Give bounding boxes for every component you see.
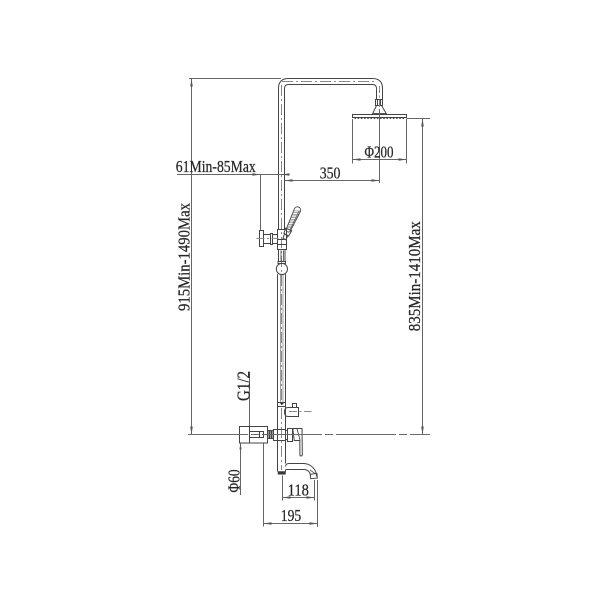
svg-text:61Min-85Max: 61Min-85Max — [176, 157, 256, 176]
svg-text:118: 118 — [288, 480, 309, 499]
svg-text:835Min-1410Max: 835Min-1410Max — [405, 221, 424, 331]
svg-text:Φ60: Φ60 — [225, 470, 244, 493]
svg-text:915Min-1490Max: 915Min-1490Max — [175, 203, 194, 311]
svg-text:195: 195 — [281, 506, 301, 525]
svg-text:Φ200: Φ200 — [365, 143, 394, 162]
svg-text:350: 350 — [320, 164, 341, 183]
svg-text:G1/2: G1/2 — [234, 371, 254, 401]
